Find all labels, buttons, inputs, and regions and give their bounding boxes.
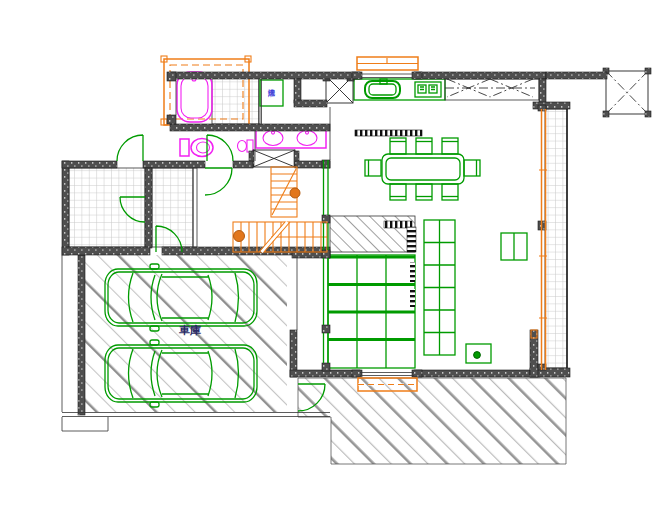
dining-chair — [442, 138, 458, 154]
closet-x-box-stair — [249, 150, 299, 167]
door-stair-hall — [205, 168, 232, 195]
wall-segment — [145, 168, 152, 248]
wall-post — [322, 250, 330, 258]
dining-table — [382, 154, 464, 184]
wood-deck — [328, 255, 415, 368]
wall-segment — [170, 72, 360, 79]
stair-newel — [234, 231, 245, 242]
wall-segment — [143, 161, 205, 168]
bathtub — [177, 72, 212, 122]
deck-track-mark — [410, 262, 415, 282]
low-table — [501, 233, 527, 260]
dining-chair — [442, 184, 458, 200]
storage-room-middle-floor — [152, 168, 193, 247]
wall-segment — [62, 161, 117, 168]
floor-plan-canvas: 洗濯機 — [0, 0, 660, 523]
wall-post — [352, 72, 362, 79]
wall-segment — [233, 161, 253, 168]
floor-plan-drawing: 洗濯機 — [0, 0, 660, 523]
cooktop — [415, 82, 441, 97]
side-table — [466, 344, 491, 363]
wall-segment — [414, 370, 540, 377]
dining-chair — [390, 138, 406, 154]
toilet — [180, 139, 213, 157]
dining-chair — [464, 160, 480, 176]
balcony-tile-floor — [545, 105, 567, 370]
wall-post — [167, 115, 176, 124]
porch-floor — [298, 378, 566, 464]
stair-upper-flight — [271, 167, 300, 217]
washing-machine-label: 洗濯機 — [268, 89, 276, 98]
wall-segment — [170, 124, 330, 131]
stair-newel — [290, 188, 300, 198]
wall-segment — [294, 79, 301, 103]
washing-machine: 洗濯機 — [260, 80, 283, 106]
wall-post — [322, 363, 330, 371]
wall-post — [412, 370, 422, 377]
wall-segment — [78, 255, 85, 415]
bay-window-top — [357, 57, 418, 70]
ceiling-dash-strip — [355, 130, 422, 136]
wall-segment — [62, 247, 150, 255]
void-area — [445, 79, 539, 100]
door-corridor-right-up — [207, 135, 233, 161]
deck-track-mark — [410, 289, 415, 307]
bathroom-tile-floor — [212, 73, 260, 124]
storage-room-left-floor — [69, 168, 145, 247]
dining-chair — [365, 160, 381, 176]
dining-chair — [390, 184, 406, 200]
outer-x-box — [603, 68, 651, 117]
shelf-unit — [424, 220, 455, 355]
wall-post — [167, 72, 176, 81]
dining-chair — [416, 184, 432, 200]
wall-segment — [294, 100, 327, 107]
stairs — [233, 167, 327, 252]
wall-segment — [414, 72, 546, 79]
garage-label: 車庫 — [178, 324, 202, 336]
hand-wash-basin — [238, 140, 254, 152]
dining-chair — [416, 138, 432, 154]
wall-segment — [62, 161, 69, 255]
wall-segment — [546, 72, 607, 79]
wall-post — [352, 370, 362, 377]
wall-post — [322, 325, 330, 333]
wall-post — [412, 72, 422, 79]
door-corridor-left — [117, 135, 143, 161]
floor-lamp — [474, 352, 481, 359]
kitchen-sink — [365, 79, 400, 98]
